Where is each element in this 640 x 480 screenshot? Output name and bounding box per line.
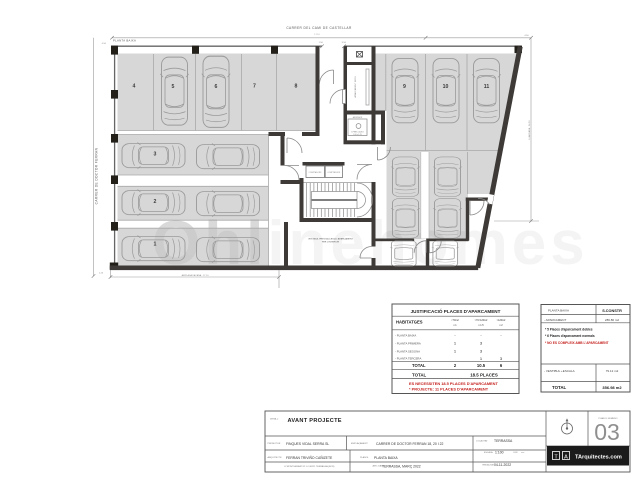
svg-text:4.50: 4.50 [524, 35, 529, 37]
svg-text:AMPLADA FACANA : 17.10: AMPLADA FACANA : 17.10 [182, 274, 210, 277]
svg-text:TERRASSA: TERRASSA [494, 439, 513, 443]
svg-text:>70<120m2: >70<120m2 [475, 319, 488, 322]
svg-text:TArquitectes.com: TArquitectes.com [575, 455, 622, 461]
svg-text:1.20: 1.20 [99, 273, 104, 275]
svg-text:03: 03 [594, 419, 620, 445]
svg-text:5: 5 [172, 84, 175, 90]
svg-text:VESTIBUL PREVI ACCES A L'APARC: VESTIBUL PREVI ACCES A L'APARCAMENT [308, 238, 353, 241]
svg-text:04-11-2022: 04-11-2022 [494, 463, 511, 467]
svg-text:10.5: 10.5 [477, 363, 486, 368]
svg-text:<70m2: <70m2 [451, 319, 459, 322]
svg-text:DETALL:: DETALL: [270, 418, 279, 421]
svg-text:- PLANTA TERCERA: - PLANTA TERCERA [395, 357, 421, 361]
svg-text:* 6 Places d'aparcament normal: * 6 Places d'aparcament normals [545, 334, 595, 338]
svg-text:79.12 m2: 79.12 m2 [606, 369, 619, 373]
svg-text:PLANTA BAIXA: PLANTA BAIXA [113, 39, 136, 43]
svg-text:FINQUES VIDAL SERRA SL: FINQUES VIDAL SERRA SL [286, 442, 329, 446]
svg-text:CARRER DE DOCTOR FERRAN: CARRER DE DOCTOR FERRAN [95, 147, 99, 204]
svg-text:3: 3 [154, 152, 157, 158]
svg-text:356.98 m2: 356.98 m2 [602, 385, 622, 390]
svg-text:TERRASSA, MARÇ 2022: TERRASSA, MARÇ 2022 [382, 464, 421, 468]
svg-text:JUSTIFICACIÓ PLACES D'APARCAME: JUSTIFICACIÓ PLACES D'APARCAMENT [411, 307, 501, 314]
svg-text:- PLANTA SEGONA: - PLANTA SEGONA [395, 350, 420, 354]
svg-text:17.10: 17.10 [314, 34, 320, 36]
svg-text:A: A [564, 454, 568, 460]
svg-text:REDACTAT: REDACTAT [483, 463, 495, 466]
svg-text:6: 6 [215, 84, 218, 90]
svg-text:7: 7 [253, 84, 256, 90]
svg-text:---: --- [521, 450, 524, 454]
svg-text:1.50: 1.50 [319, 42, 324, 44]
svg-text:CARRER DEL CAMI DE CASTELLAR: CARRER DEL CAMI DE CASTELLAR [286, 26, 352, 30]
svg-text:* NO ES COMPLEIX AMB L'APARCAM: * NO ES COMPLEIX AMB L'APARCAMENT [545, 341, 609, 345]
svg-text:>120m2: >120m2 [497, 319, 506, 322]
svg-text:LLARGADA : 24.50: LLARGADA : 24.50 [528, 120, 531, 140]
svg-text:TOTAL: TOTAL [412, 372, 427, 377]
svg-text:2: 2 [154, 199, 157, 205]
svg-text:PLANTA BAIXA: PLANTA BAIXA [374, 456, 398, 460]
svg-text:286.86 m2: 286.86 m2 [605, 318, 620, 322]
svg-text:- PLANTA PRIMERA: - PLANTA PRIMERA [395, 342, 421, 346]
svg-text:8: 8 [295, 84, 298, 90]
svg-text:1.00 x 1.25: 1.00 x 1.25 [353, 134, 361, 136]
svg-text:* PROJECTE: 11 PLACES D'APARCA: * PROJECTE: 11 PLACES D'APARCAMENT [409, 387, 489, 392]
svg-text:11: 11 [484, 84, 490, 90]
svg-text:ARQUITECTE: ARQUITECTE [268, 456, 283, 459]
svg-text:COMPTADORS: COMPTADORS [327, 171, 341, 174]
svg-text:EMPLAÇAMENT: EMPLAÇAMENT [351, 442, 368, 445]
svg-text:x 1.5: x 1.5 [478, 324, 484, 327]
svg-text:PLANOL: PLANOL [360, 456, 369, 459]
svg-text:DIN: DIN [514, 452, 518, 454]
svg-text:PROMOTOR: PROMOTOR [268, 443, 281, 445]
svg-text:C/ MONTSERRAT 92 1-2 08221 TER: C/ MONTSERRAT 92 1-2 08221 TERRASSA (BCN… [284, 465, 335, 468]
svg-text:4.50: 4.50 [102, 43, 107, 45]
svg-text:ASCENSOR: ASCENSOR [353, 116, 363, 119]
svg-text:APARCAMENT BICIS: APARCAMENT BICIS [354, 76, 357, 98]
svg-text:PER L'INTERIOR: PER L'INTERIOR [322, 242, 340, 244]
svg-text:TOTAL: TOTAL [552, 385, 567, 390]
svg-text:AVANT PROJECTE: AVANT PROJECTE [288, 418, 342, 424]
svg-text:FERRAN TRIVIÑO CAÑIZETE: FERRAN TRIVIÑO CAÑIZETE [286, 455, 333, 460]
svg-text:- APARCAMENT: - APARCAMENT [544, 318, 566, 322]
svg-text:1:100: 1:100 [495, 450, 504, 454]
svg-text:* 5 Places d'aparcament dobles: * 5 Places d'aparcament dobles [545, 328, 593, 332]
svg-text:9: 9 [403, 84, 406, 90]
svg-text:1: 1 [154, 241, 157, 247]
svg-text:ES NECESSITEN 18.5 PLACES D'AP: ES NECESSITEN 18.5 PLACES D'APARCAMENT [409, 381, 498, 386]
svg-text:TOTAL: TOTAL [412, 363, 426, 368]
svg-text:HABITATGES: HABITATGES [396, 320, 423, 325]
svg-text:10: 10 [443, 84, 449, 90]
svg-text:18.5 PLACES: 18.5 PLACES [470, 372, 498, 377]
svg-text:S.CONSTR: S.CONSTR [602, 309, 622, 313]
svg-text:ESCALA: ESCALA [484, 451, 493, 454]
svg-text:4: 4 [133, 84, 136, 90]
svg-text:PLANTA BAIXA: PLANTA BAIXA [548, 309, 569, 313]
svg-text:- PLANTA BAIXA: - PLANTA BAIXA [395, 334, 416, 338]
svg-text:- VESTIBUL +ESCALA: - VESTIBUL +ESCALA [544, 369, 575, 373]
svg-text:LOCALITAT: LOCALITAT [476, 439, 488, 442]
svg-text:CARRER DE DOCTOR FERRAN 18, 20: CARRER DE DOCTOR FERRAN 18, 20 I 22 [376, 442, 444, 446]
svg-text:COMPTADORS: COMPTADORS [309, 171, 323, 174]
svg-text:3.50: 3.50 [342, 42, 347, 44]
